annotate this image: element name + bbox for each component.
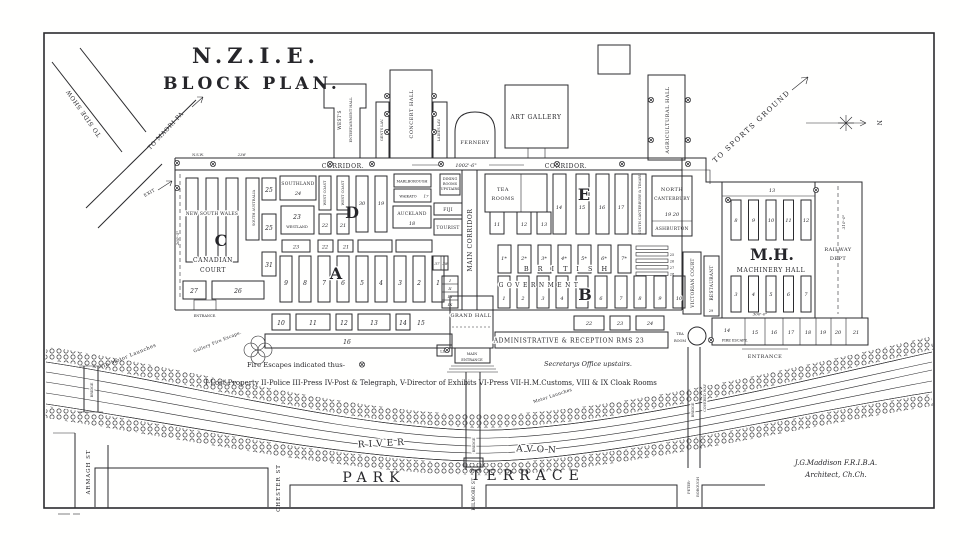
stall-number: 2: [520, 296, 524, 302]
corridor-right-label: CORRIDOR.: [545, 163, 587, 170]
section-a-label: A: [329, 264, 343, 283]
kilmore-st-label: KILMORE ST: [472, 478, 477, 511]
stall-number: 19 20: [665, 212, 680, 218]
westland-label: WESTLAND: [286, 225, 308, 229]
fiji-label: FIJI: [443, 208, 452, 213]
stall-number: 19: [378, 201, 385, 207]
stall-number: 26: [670, 260, 674, 264]
stall-number: 12: [521, 222, 527, 228]
stall-number: 6*: [601, 256, 607, 262]
tea-room-label2: ROOM: [674, 339, 686, 343]
road-sports-label: TO SPORTS GROUND: [711, 89, 792, 165]
stall-number: 23: [292, 214, 301, 221]
stall-number: 14: [399, 320, 407, 327]
stall-number: 27: [189, 288, 198, 295]
stall-number: 22: [321, 223, 328, 229]
fire-escape-note-right: FIRE ESCAPE.: [722, 339, 748, 343]
dining-rooms-label3: UPSTAIRS: [441, 187, 460, 191]
stall-number: 13: [769, 188, 775, 194]
stall-number: 7*: [621, 256, 627, 262]
stall-number: 16: [343, 339, 351, 346]
main-corridor-label: MAIN CORRIDOR: [467, 209, 474, 272]
stall-number: 31: [265, 262, 273, 269]
stall-number: 20: [834, 330, 842, 336]
concert-hall-label: CONCERT HALL: [409, 89, 415, 138]
stall-number: 24: [294, 191, 301, 197]
stall-number: 17: [423, 194, 429, 199]
bridge-west-label: BRIDGE: [90, 382, 94, 397]
e-block: TEA ROOMS 11 12 13 14 15 16 17 E SOUTH C…: [485, 173, 692, 236]
section-e-label: E: [578, 185, 590, 204]
stall-number: 8: [734, 218, 737, 224]
stall-number: 29: [709, 309, 713, 313]
stall-number: 18: [805, 330, 811, 336]
stall-number: 26: [233, 288, 242, 295]
wests-hall-label: WEST'S: [338, 110, 343, 130]
stall-number: 2: [416, 280, 421, 287]
stall-number: 3: [541, 296, 544, 302]
southland-label: SOUTHLAND: [281, 182, 314, 187]
plan-svg: N.Z.I.E. BLOCK PLAN. N TO SIDE SHOW TO M…: [0, 0, 960, 557]
stall-number: 9: [284, 280, 288, 287]
stall-number: 14: [724, 328, 730, 334]
road-maori-pa-label: TO MAORI PA: [146, 110, 185, 151]
stall-number: 19: [820, 330, 827, 336]
canadian-court-label: CANADIAN: [193, 257, 233, 264]
stall-number: 15: [752, 330, 758, 336]
fire-escape-note: Fire Escapes indicated thus-: [247, 361, 345, 369]
dim-236: 236': [237, 152, 247, 157]
avon-label: AVON: [515, 444, 560, 456]
stall-number: 14: [556, 205, 562, 211]
armagh-st-label: ARMAGH ST: [86, 449, 92, 495]
railway-dept-label2: DEPT: [830, 256, 847, 262]
architect-signature: J.G.Maddison F.R.I.B.A. Architect, Ch.Ch…: [793, 459, 877, 479]
stall-number: 23: [616, 321, 623, 327]
gallery-fire-escape-note: Gallery Fire Escape.: [193, 331, 243, 355]
stall-number: 1: [502, 296, 505, 302]
plan-subtitle: BLOCK PLAN.: [163, 74, 341, 94]
stall-number: 5: [360, 280, 364, 287]
agricultural-hall-label: AGRICULTURAL HALL: [665, 86, 671, 154]
stall-number: 11: [785, 218, 791, 224]
compass: N: [806, 115, 882, 131]
stall-number: 24: [646, 321, 653, 327]
stall-number: 15: [579, 205, 585, 211]
b-block: 1* 2* 3* 4* 5* 6* 7* BRITISH GOVERNMENT …: [498, 245, 685, 330]
bridge-east-label: BRIDGE: [691, 402, 695, 417]
tea-rooms-label: TEA: [497, 187, 509, 193]
stall-number: 8: [303, 280, 307, 287]
a-section: 9 8 7 6 5 4 3 2 1 A 37 38 I II III IX: [280, 256, 458, 308]
stall-number: 15: [417, 320, 425, 327]
signature-line1: J.G.Maddison F.R.I.B.A.: [793, 459, 877, 467]
stall-number: 22: [321, 245, 328, 251]
stall-number: 2*: [520, 256, 527, 262]
stall-number: 17: [788, 330, 795, 336]
stall-number: 7: [322, 280, 326, 287]
stall-number: 3: [734, 292, 737, 298]
main-entrance-label2: ENTRANCE: [461, 358, 483, 362]
west-entrance-label: ENTRANCE.: [194, 314, 217, 318]
road-sports-ground: TO SPORTS GROUND: [711, 77, 808, 165]
tea-rooms-label2: ROOMS: [491, 196, 514, 202]
room-roman-numeral: II: [447, 286, 452, 291]
west-dimension: 260'-5": [175, 231, 180, 247]
bridge-center-label: BRIDGE: [472, 437, 476, 452]
peterborough-st-label2: BOROUGH: [696, 477, 700, 497]
exit-label: EXIT: [143, 188, 156, 198]
stall-number: 21: [339, 223, 346, 229]
stall-number: 27: [670, 266, 674, 270]
stall-number: 25: [264, 187, 273, 194]
section-d-label: D: [345, 203, 359, 222]
peterborough-st-label: PETER-: [687, 479, 691, 493]
stall-number: 21: [852, 330, 859, 336]
stall-number: 4: [751, 292, 755, 298]
gents-lav-label: GENTS LAV.: [380, 119, 384, 141]
mh-entrance-label: ENTRANCE: [748, 354, 783, 360]
stall-number: 1*: [501, 256, 507, 262]
rotunda: [244, 336, 272, 364]
river-avon: RIVER AVON BRIDGE BRIDGE BRIDGE COVERED …: [46, 343, 932, 470]
auckland-label: AUCKLAND: [396, 212, 427, 217]
stall-number: 12: [803, 218, 809, 224]
administrative-label: ADMINISTRATIVE & RECEPTION RMS 23: [493, 338, 645, 345]
stall-number: 11: [309, 320, 317, 327]
covered-way-label: COVERED WAY: [703, 383, 707, 411]
section-c-label: C: [215, 231, 228, 250]
hatched-building: [598, 45, 630, 74]
stall-number: 38: [442, 261, 448, 266]
tourist-label: TOURIST: [436, 226, 459, 231]
room-roman-numeral: I: [448, 278, 451, 283]
stall-number: 11: [494, 222, 500, 228]
section-b-label: B: [578, 285, 592, 304]
dining-rooms-label: DINING: [443, 177, 458, 181]
south-australia-label: SOUTH AUSTRALIA: [252, 189, 256, 226]
road-side-show-label: TO SIDE SHOW: [65, 88, 103, 138]
new-south-wales-label: NEW SOUTH WALES: [186, 212, 239, 217]
marlborough-label: MARLBOROUGH: [397, 180, 428, 184]
dining-rooms-label2: ROOMS: [443, 182, 458, 186]
signature-line2: Architect, Ch.Ch.: [804, 471, 866, 479]
ladies-lav-label: LADIES LAV.: [437, 119, 441, 142]
stall-number: 18: [409, 221, 415, 227]
wests-hall-label2: ENTERTAINMENT HALL: [349, 97, 353, 143]
victorian-court-label: VICTORIAN COURT: [691, 258, 696, 309]
bridge-west: BRIDGE: [79, 366, 103, 412]
stall-number: 4*: [560, 256, 567, 262]
stall-number: 30: [359, 201, 366, 207]
restaurant-label: RESTAURANT: [710, 265, 715, 300]
stall-number: 4: [378, 280, 383, 287]
stall-number: 37: [434, 261, 440, 266]
stall-number: 21: [342, 245, 349, 251]
park-terrace-label: PARK: [342, 470, 405, 486]
south-canterbury-timaru-label: SOUTH CANTERBURY & TIMARU: [638, 173, 642, 235]
secretary-note: Secretarys Office upstairs.: [544, 360, 632, 368]
west-bottom-strip: 10 11 12 13 14 15 16: [244, 314, 452, 364]
waikato-label: WAIKATO: [399, 195, 416, 199]
legend-rooms: I-Lost Property II-Police III-Press IV-P…: [205, 379, 657, 387]
stall-number: 28: [670, 273, 674, 277]
fernery-label: FERNERY: [460, 140, 490, 146]
stall-number: 25: [670, 253, 674, 257]
compass-north-label: N: [875, 120, 882, 126]
stall-number: 5*: [581, 256, 587, 262]
north-canterbury-label: NORTH: [661, 187, 683, 193]
stall-number: 8: [638, 296, 641, 302]
stall-number: 6: [599, 296, 603, 302]
stall-number: 3: [398, 280, 402, 287]
mh-dimension-horizontal: 300'-0": [753, 312, 768, 317]
main-corridor: MAIN CORRIDOR: [462, 170, 477, 310]
stall-number: 6: [787, 292, 791, 298]
nsw-dim-label: N.S.W.: [192, 153, 203, 157]
british-label: BRITISH: [524, 265, 616, 273]
title-block: N.Z.I.E. BLOCK PLAN.: [163, 43, 341, 94]
stall-number: 1: [436, 280, 440, 287]
stall-number: 4: [559, 296, 563, 302]
annex-buildings: WEST'S ENTERTAINMENT HALL GENTS LAV. CON…: [324, 45, 685, 160]
tea-room-label: TEA: [676, 332, 684, 336]
stall-number: 7: [804, 292, 808, 298]
machinery-hall-label: MACHINERY HALL: [737, 267, 805, 274]
stall-number: 23: [292, 245, 299, 251]
west-coast-label: WEST COAST: [341, 180, 345, 205]
stall-number: 13: [541, 222, 547, 228]
plan-title: N.Z.I.E.: [192, 43, 320, 68]
grand-hall-label: GRAND HALL: [451, 313, 492, 319]
mh-dimension-vertical: 310'-0": [841, 215, 846, 230]
chester-st-label: CHESTER ST: [276, 464, 282, 512]
d-block: SOUTHLAND 24 23 WESTLAND WEST COAST WEST…: [280, 174, 462, 252]
government-label: GOVERNMENT: [499, 282, 582, 289]
art-gallery-label: ART GALLERY: [509, 114, 561, 121]
block-plan-drawing: N.Z.I.E. BLOCK PLAN. N TO SIDE SHOW TO M…: [0, 0, 960, 557]
stall-number: 10: [768, 218, 775, 224]
stall-number: 16: [599, 205, 606, 211]
stall-number: 10: [277, 320, 285, 327]
west-coast-label: WEST COAST: [323, 180, 327, 205]
stall-number: 9: [752, 218, 756, 224]
west-wing: 260'-5" NEW SOUTH WALES SOUTH AUSTRALIA …: [175, 174, 276, 318]
stall-number: 25: [264, 225, 273, 232]
stall-number: 9: [658, 296, 662, 302]
stall-number: 3*: [541, 256, 547, 262]
main-entrance-label: MAIN: [467, 352, 478, 356]
machinery-hall: 310'-0" RAILWAY DEPT 13 8 9 10 11 12 M.H…: [712, 182, 868, 360]
stall-number: 12: [340, 320, 348, 327]
stall-number: 16: [771, 330, 778, 336]
stall-number: 17: [618, 205, 625, 211]
park-terrace-label2: TERRACE: [471, 468, 585, 484]
stall-number: 22: [585, 321, 592, 327]
motor-launches-note2: Motor Launches: [533, 388, 574, 405]
canadian-court-label2: COURT: [200, 267, 226, 274]
corridor-dimension: 1002'-6": [455, 163, 476, 169]
north-canterbury-label2: CANTERBURY: [654, 197, 690, 202]
stall-number: 10: [676, 296, 683, 302]
stall-number: 13: [370, 320, 378, 327]
ashburton-label: ASHBURTON: [654, 227, 688, 232]
section-mh-label: M.H.: [750, 245, 794, 264]
stall-number: 7: [619, 296, 623, 302]
railway-dept-label: RAILWAY: [824, 247, 852, 253]
stall-number: 5: [769, 292, 772, 298]
